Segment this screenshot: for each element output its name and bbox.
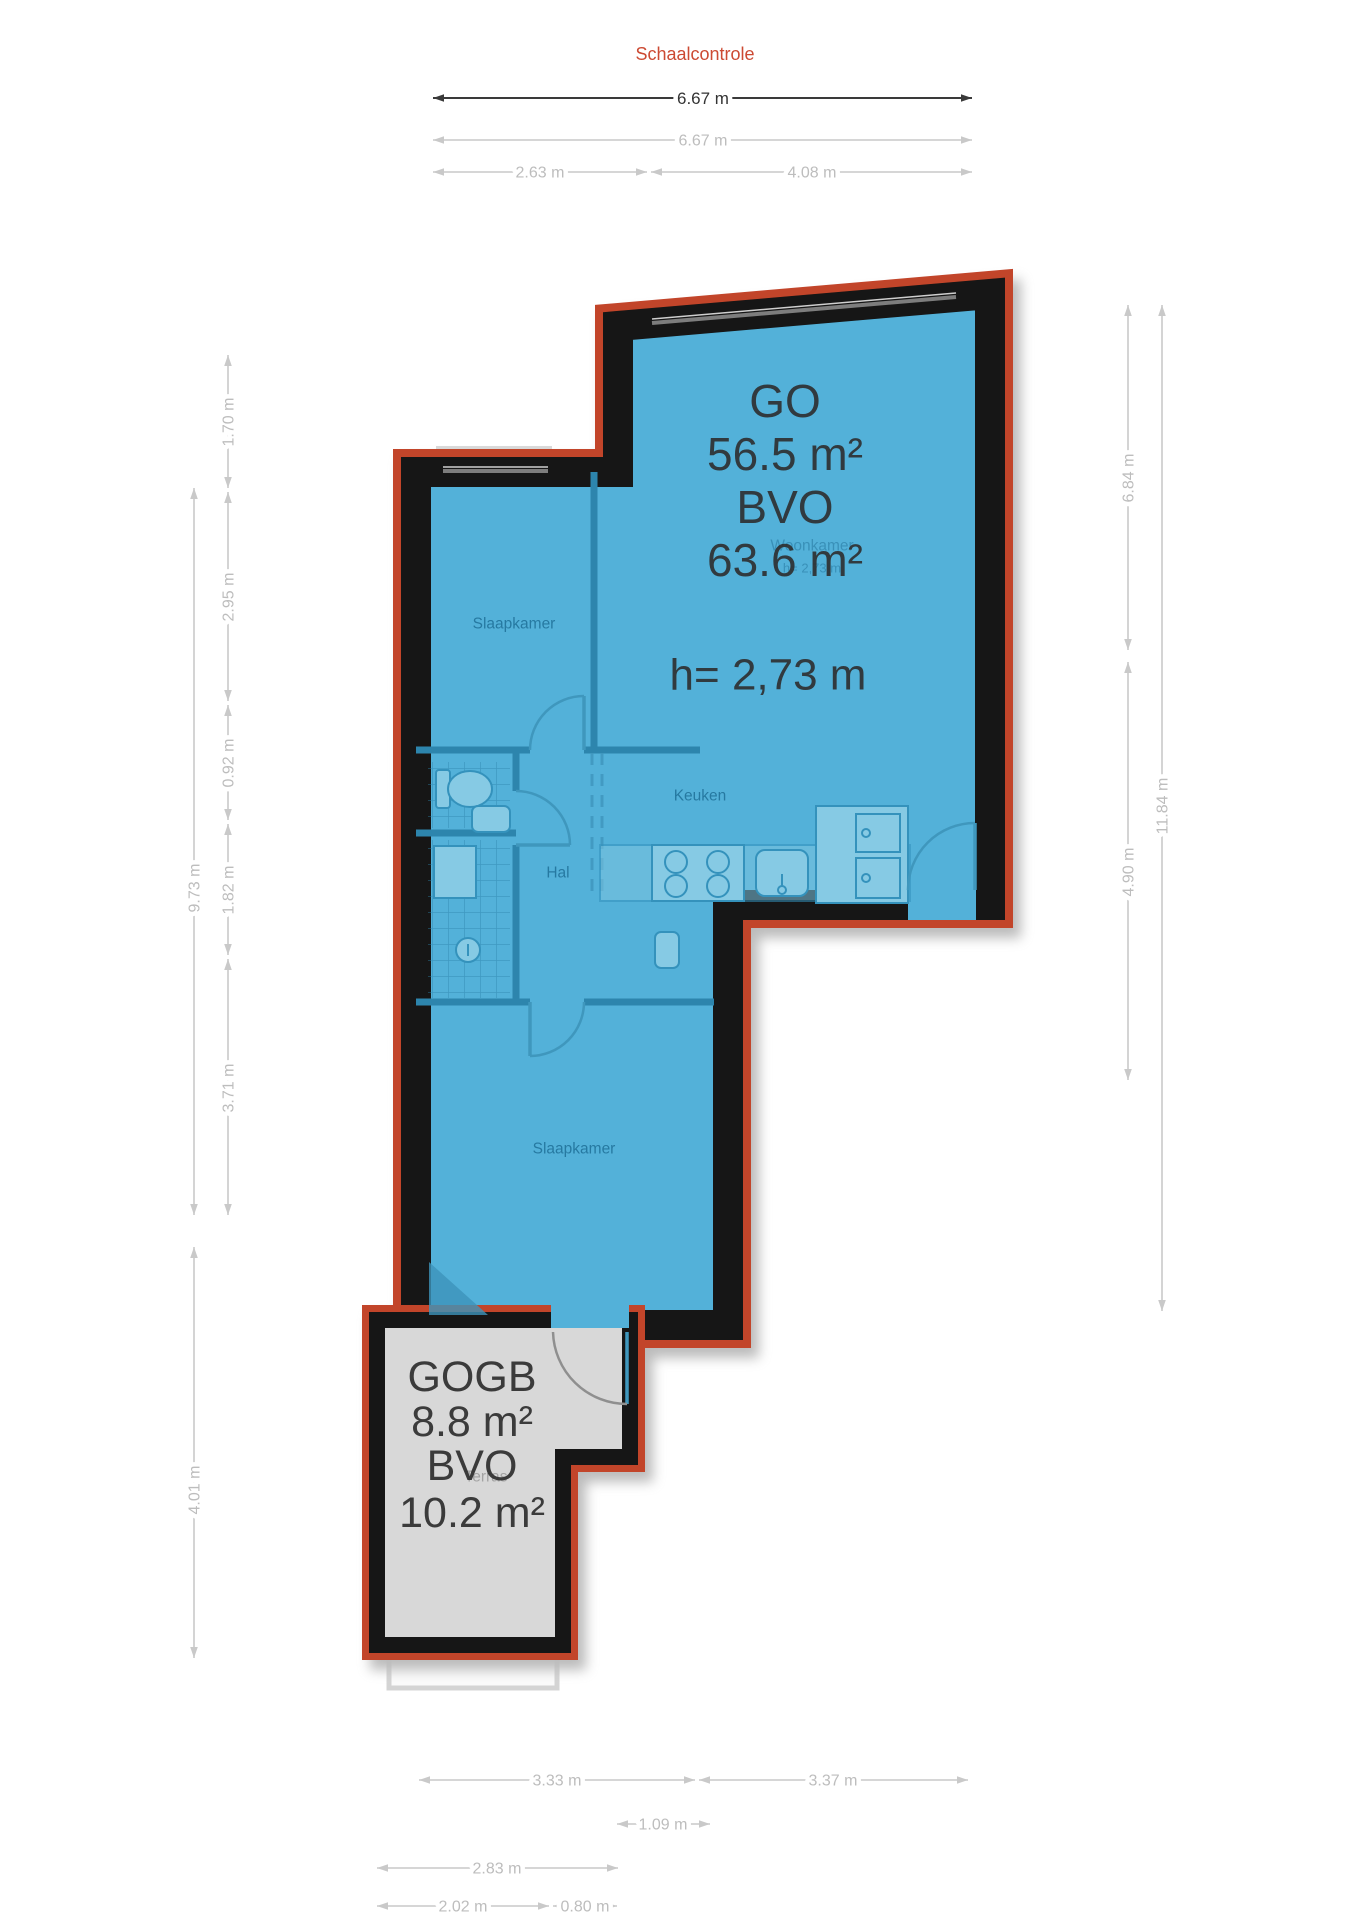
dim-right-upper-label: 6.84 m xyxy=(1121,454,1138,503)
dim-left-terrace-label: 4.01 m xyxy=(187,1466,204,1515)
room-label-bedroom-top: Slaapkamer xyxy=(473,615,556,632)
dim-left-seg1-label: 1.70 m xyxy=(221,398,238,447)
room-label-bedroom-bottom: Slaapkamer xyxy=(533,1140,616,1157)
entrance-door-gap xyxy=(908,890,976,920)
dim-bottom-row2-label: 1.09 m xyxy=(639,1817,688,1834)
dim-top-left-label: 2.63 m xyxy=(516,165,565,182)
kitchen-sink-icon xyxy=(756,850,808,896)
dim-bottom-row1-right-label: 3.37 m xyxy=(809,1773,858,1790)
area-value-go: 56.5 m² xyxy=(707,428,863,480)
area-label-go: GO xyxy=(749,375,821,427)
dim-left-seg5-label: 3.71 m xyxy=(221,1064,238,1113)
dim-bottom-row3-label: 2.83 m xyxy=(473,1861,522,1878)
floorplan-svg: Schaalcontrole xyxy=(0,0,1358,1920)
dim-left-outer-label: 9.73 m xyxy=(187,864,204,913)
room-label-hall: Hal xyxy=(546,864,569,881)
dim-left-seg2-label: 2.95 m xyxy=(221,573,238,622)
area-label-gogb: GOGB xyxy=(407,1353,536,1401)
area-value-gogb-bvo: 10.2 m² xyxy=(399,1489,545,1537)
terrace-door-gap xyxy=(551,1298,629,1328)
page-title: Schaalcontrole xyxy=(635,44,754,64)
dim-bottom-row4-right-label: 0.80 m xyxy=(561,1899,610,1916)
dim-top-right-label: 4.08 m xyxy=(788,165,837,182)
area-value-gogb: 8.8 m² xyxy=(411,1398,533,1446)
bathroom xyxy=(428,762,510,998)
dim-top-total-label: 6.67 m xyxy=(679,133,728,150)
toilet-icon xyxy=(436,770,492,808)
appliance-column-icon xyxy=(816,806,908,903)
dim-bottom-row1-left-label: 3.33 m xyxy=(533,1773,582,1790)
stove-icon xyxy=(652,845,744,901)
dim-right-lower-label: 4.90 m xyxy=(1121,848,1138,897)
shower-drain-icon xyxy=(456,938,480,962)
area-label-bvo: BVO xyxy=(736,481,833,533)
sink-icon xyxy=(472,806,510,832)
radiator-icon xyxy=(655,932,679,968)
dim-left-seg4-label: 1.82 m xyxy=(221,866,238,915)
scale-bar-label: 6.67 m xyxy=(677,89,729,108)
floorplan-page: Schaalcontrole xyxy=(0,0,1358,1920)
dim-right-outer-label: 11.84 m xyxy=(1155,778,1172,835)
dim-left-seg3-label: 0.92 m xyxy=(221,739,238,788)
ceiling-height-label: h= 2,73 m xyxy=(670,650,867,699)
dim-bottom-row4-left-label: 2.02 m xyxy=(439,1899,488,1916)
room-label-kitchen: Keuken xyxy=(674,787,727,804)
floor-plan: Slaapkamer Woonkamer h= 2,73 m Keuken Ha… xyxy=(377,293,990,1688)
area-value-bvo: 63.6 m² xyxy=(707,534,863,586)
area-label-gogb-bvo: BVO xyxy=(427,1442,518,1490)
closet-icon xyxy=(434,846,476,898)
